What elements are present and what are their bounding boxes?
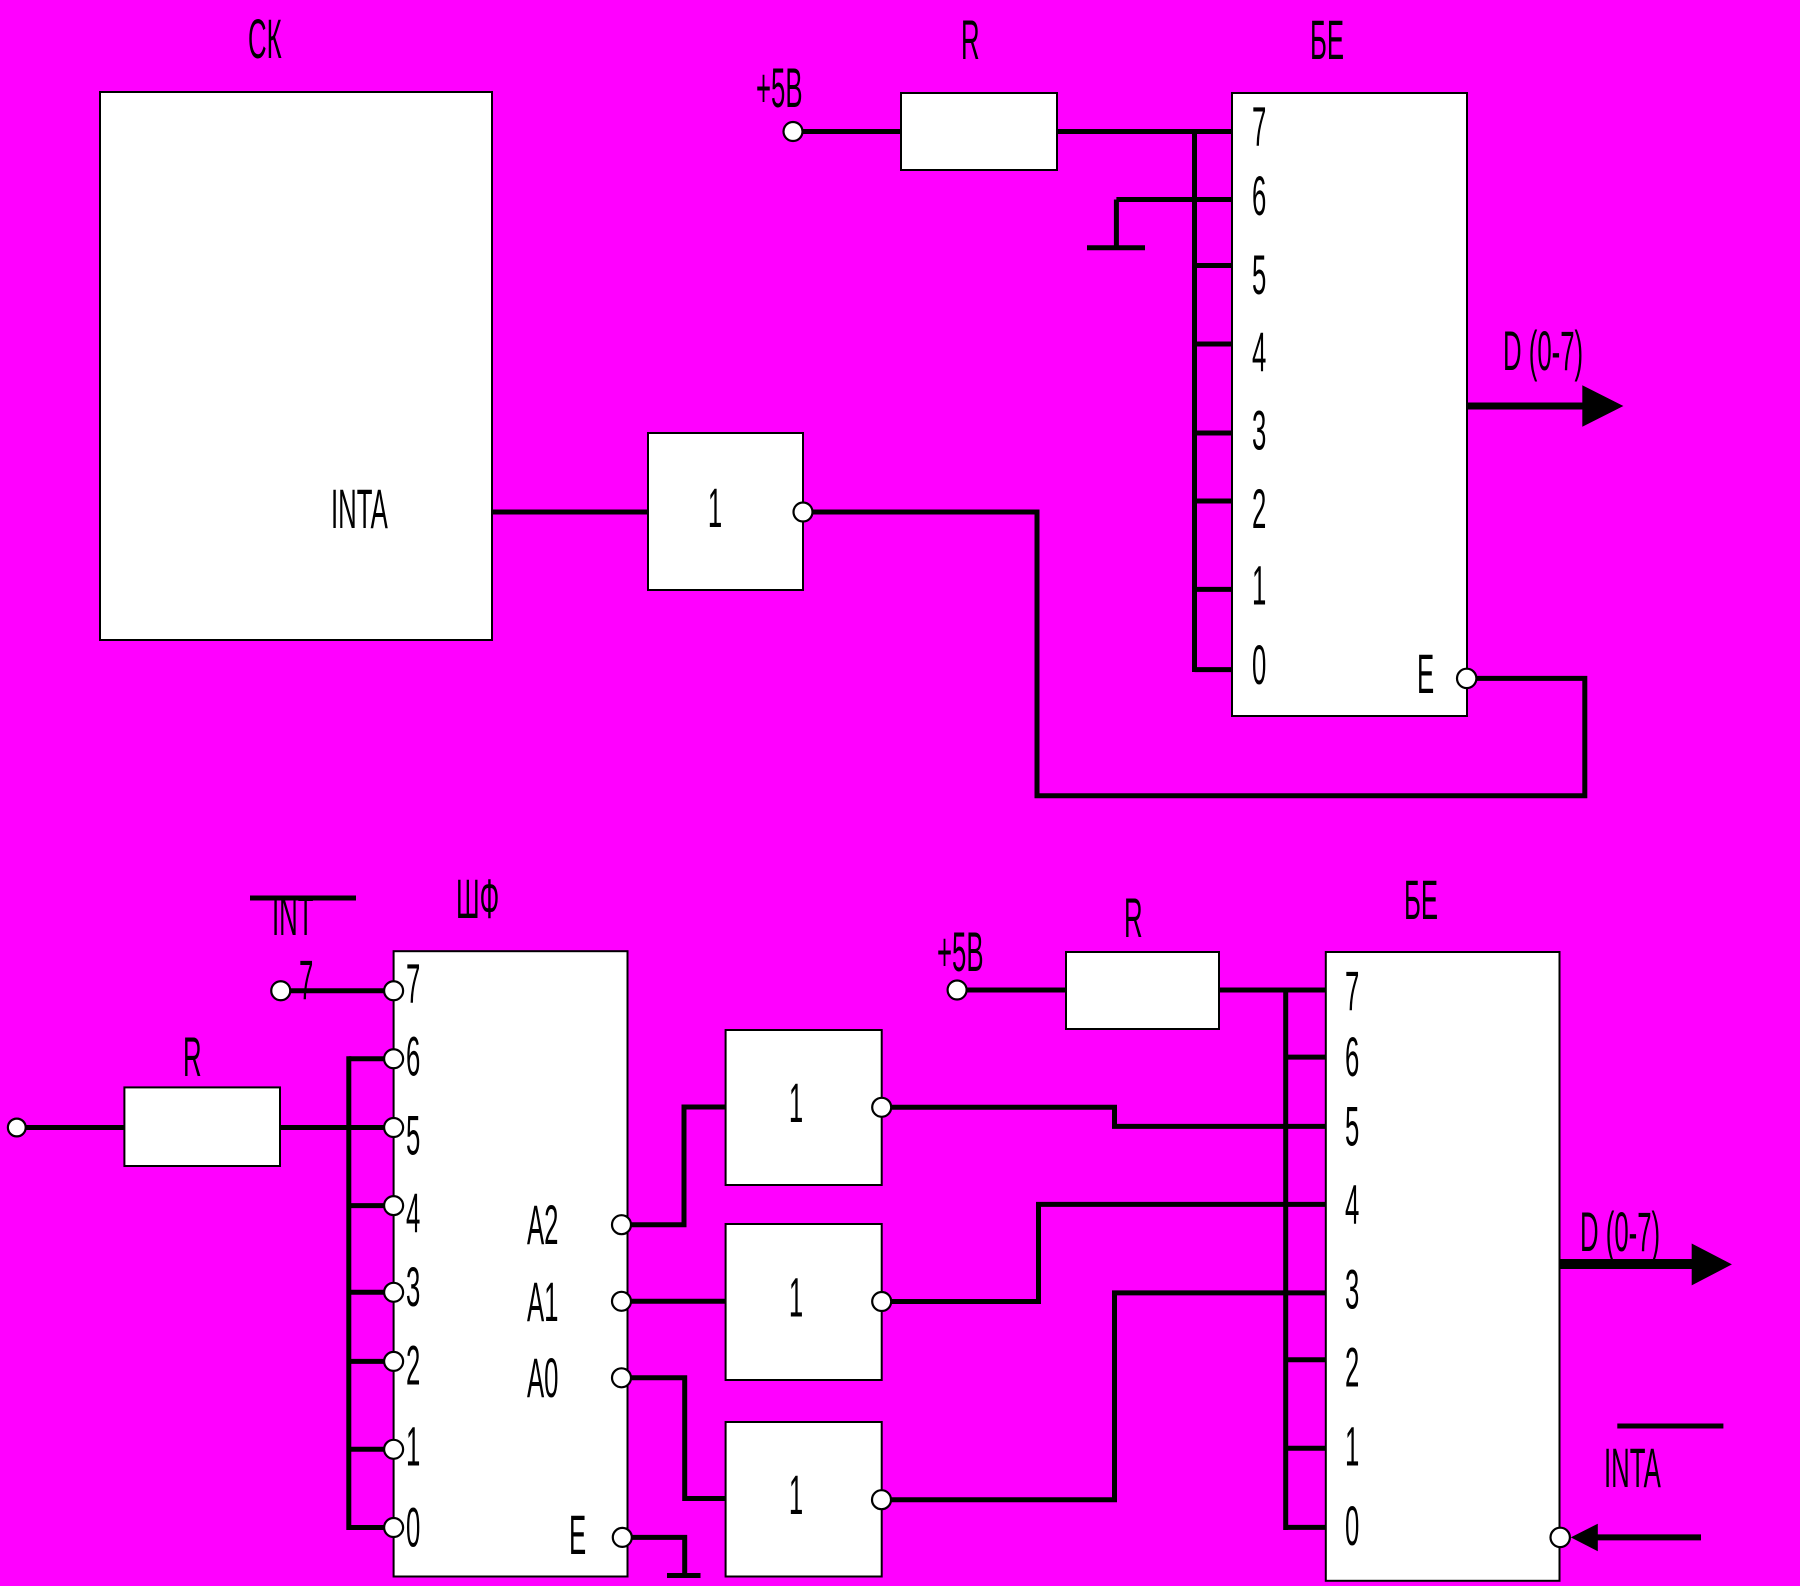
svg-text:R: R [961, 10, 980, 72]
svg-text:D (0-7): D (0-7) [1503, 321, 1583, 383]
svg-text:БЕ: БЕ [1310, 10, 1344, 72]
svg-text:2: 2 [406, 1336, 420, 1398]
svg-text:СК: СК [248, 9, 282, 71]
svg-text:5: 5 [1252, 245, 1266, 307]
svg-text:A1: A1 [527, 1272, 559, 1334]
svg-text:4: 4 [1252, 322, 1266, 384]
svg-text:R: R [1124, 888, 1143, 950]
svg-text:5: 5 [406, 1106, 420, 1168]
svg-text:7: 7 [299, 950, 313, 1012]
svg-text:1: 1 [789, 1073, 803, 1135]
svg-text:2: 2 [1345, 1338, 1359, 1400]
svg-text:A2: A2 [527, 1195, 559, 1257]
svg-text:0: 0 [1345, 1496, 1359, 1558]
svg-text:1: 1 [406, 1417, 420, 1479]
svg-text:6: 6 [406, 1027, 420, 1089]
svg-text:3: 3 [1252, 401, 1266, 463]
svg-text:0: 0 [406, 1498, 420, 1560]
svg-text:E: E [569, 1505, 586, 1567]
svg-text:5: 5 [1345, 1097, 1359, 1159]
svg-text:0: 0 [1252, 635, 1266, 697]
svg-text:1: 1 [789, 1465, 803, 1527]
svg-text:+5В: +5В [756, 58, 803, 120]
svg-text:1: 1 [1345, 1417, 1359, 1479]
svg-text:INTA: INTA [331, 479, 388, 541]
svg-text:6: 6 [1252, 166, 1266, 228]
svg-text:4: 4 [406, 1183, 420, 1245]
svg-text:7: 7 [1345, 961, 1359, 1023]
svg-text:7: 7 [406, 954, 420, 1016]
svg-text:2: 2 [1252, 479, 1266, 541]
svg-text:3: 3 [406, 1257, 420, 1319]
svg-text:ШФ: ШФ [456, 869, 499, 931]
svg-text:D (0-7): D (0-7) [1580, 1202, 1660, 1264]
svg-text:3: 3 [1345, 1260, 1359, 1322]
svg-text:4: 4 [1345, 1175, 1359, 1237]
svg-text:+5В: +5В [937, 922, 984, 984]
svg-text:1: 1 [708, 478, 722, 540]
svg-text:БЕ: БЕ [1404, 870, 1438, 932]
svg-text:R: R [183, 1027, 202, 1089]
svg-text:E: E [1417, 644, 1434, 706]
svg-text:7: 7 [1252, 97, 1266, 159]
svg-text:1: 1 [789, 1268, 803, 1330]
svg-text:1: 1 [1252, 556, 1266, 618]
svg-text:INT: INT [272, 886, 313, 948]
svg-text:6: 6 [1345, 1027, 1359, 1089]
svg-text:A0: A0 [527, 1348, 559, 1410]
svg-text:INTA: INTA [1604, 1438, 1661, 1500]
